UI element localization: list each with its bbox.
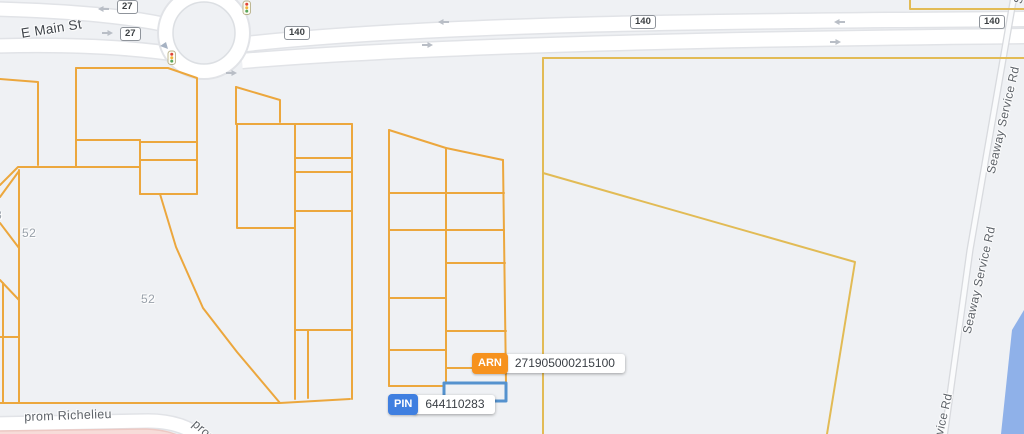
- route-shield-27: 27: [117, 0, 138, 14]
- arn-value: 271905000215100: [503, 354, 625, 373]
- water-polygon: [1001, 310, 1024, 434]
- route-shield-27: 27: [120, 27, 141, 41]
- map-canvas[interactable]: E Main St prom Richelieu prom Richelieu …: [0, 0, 1024, 434]
- parcel-boundaries: [0, 68, 506, 403]
- route-shield-140: 140: [284, 26, 310, 40]
- traffic-light-icon: [168, 51, 176, 65]
- roundabout: [158, 0, 250, 79]
- pin-popup[interactable]: PIN 644110283: [388, 394, 495, 415]
- traffic-light-icon: [243, 1, 251, 15]
- pin-badge[interactable]: PIN: [388, 394, 418, 415]
- route-shield-140: 140: [630, 15, 656, 29]
- arn-badge[interactable]: ARN: [472, 353, 508, 374]
- route-shield-140: 140: [979, 15, 1005, 29]
- pin-value: 644110283: [413, 395, 494, 414]
- seaway-road: [941, 0, 1017, 434]
- arn-popup[interactable]: ARN 271905000215100: [472, 353, 625, 374]
